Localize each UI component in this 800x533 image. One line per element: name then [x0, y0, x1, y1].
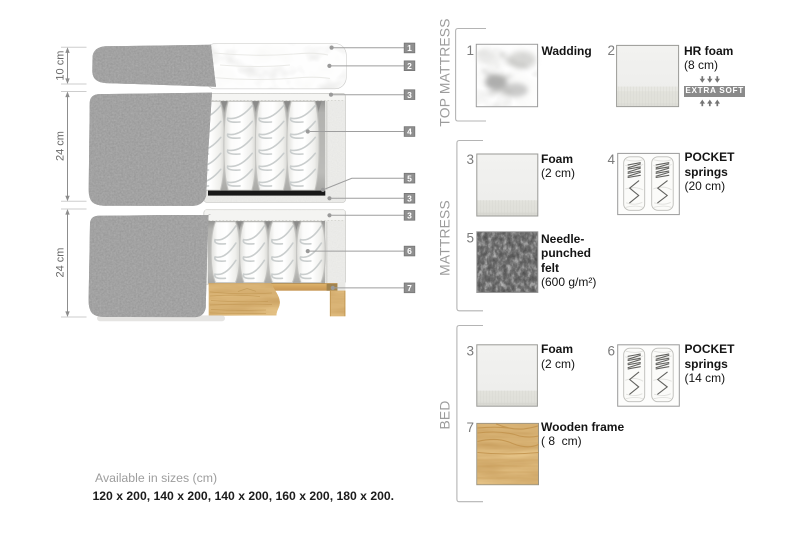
svg-text:10 cm: 10 cm: [55, 51, 67, 81]
svg-text:5: 5: [407, 173, 412, 183]
svg-text:5: 5: [466, 231, 474, 246]
svg-text:6: 6: [407, 246, 412, 256]
svg-text:6: 6: [607, 344, 615, 359]
svg-text:MATTRESS: MATTRESS: [438, 200, 453, 276]
svg-text:3: 3: [407, 90, 412, 100]
svg-text:TOP MATTRESS: TOP MATTRESS: [438, 18, 453, 126]
svg-text:1: 1: [466, 43, 474, 58]
svg-text:3: 3: [466, 344, 474, 359]
svg-text:7: 7: [407, 283, 412, 293]
svg-text:3: 3: [407, 211, 412, 221]
svg-text:3: 3: [407, 193, 412, 203]
svg-text:2: 2: [407, 61, 412, 71]
svg-text:4: 4: [407, 127, 412, 137]
svg-text:2: 2: [607, 43, 615, 58]
svg-text:24 cm: 24 cm: [55, 248, 67, 278]
svg-text:24 cm: 24 cm: [55, 131, 67, 161]
svg-text:3: 3: [466, 152, 474, 167]
svg-text:4: 4: [607, 152, 615, 167]
svg-text:BED: BED: [438, 401, 453, 430]
svg-text:7: 7: [466, 420, 474, 435]
svg-text:1: 1: [407, 43, 412, 53]
